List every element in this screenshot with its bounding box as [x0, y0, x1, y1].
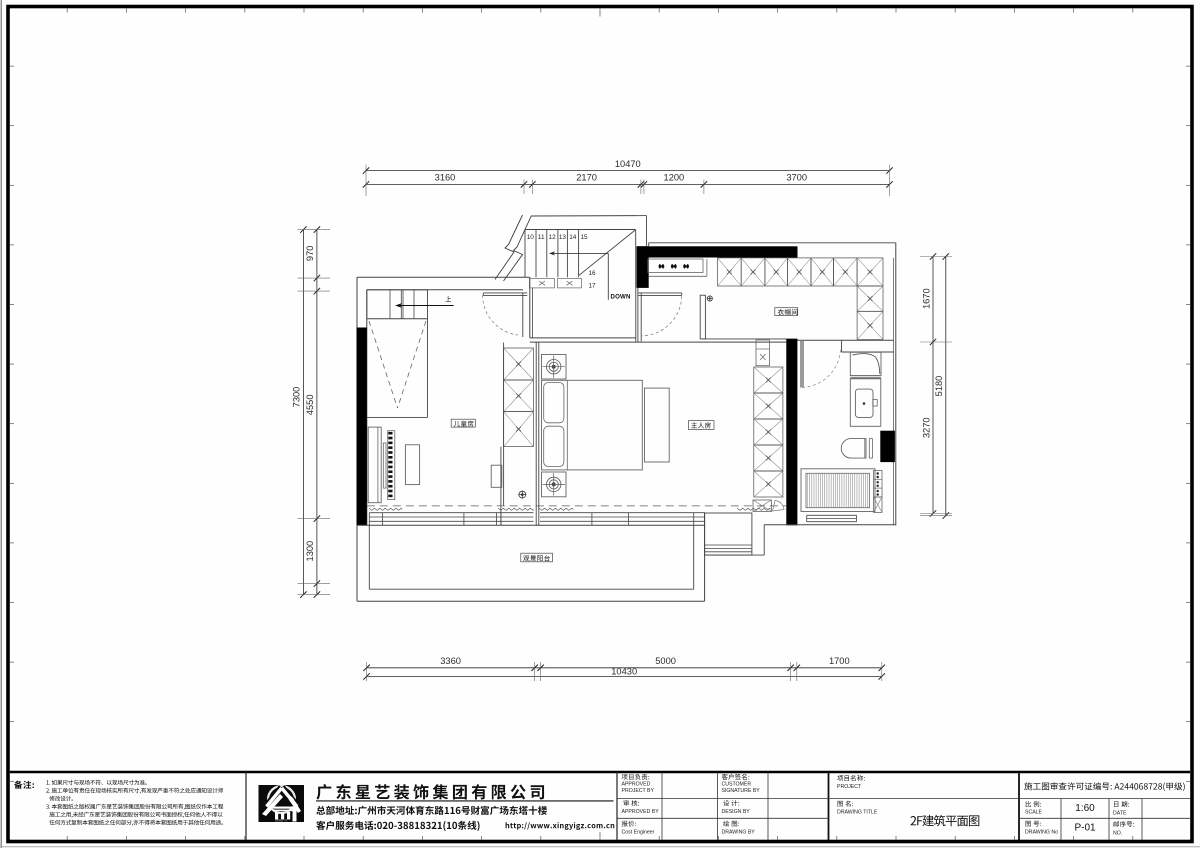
svg-text:4550: 4550 [305, 394, 315, 415]
svg-text:10470: 10470 [615, 159, 641, 169]
svg-text:2170: 2170 [576, 173, 597, 183]
svg-text:12: 12 [549, 234, 557, 241]
svg-text:5000: 5000 [655, 656, 676, 666]
svg-text:3360: 3360 [440, 656, 461, 666]
svg-text:17: 17 [589, 282, 597, 289]
svg-text:3700: 3700 [786, 173, 807, 183]
svg-text:DESIGN BY: DESIGN BY [722, 809, 751, 815]
svg-text:DATE: DATE [1113, 811, 1127, 817]
svg-text:DRAWING No: DRAWING No [1025, 830, 1058, 836]
svg-text:XING YI: XING YI [275, 819, 287, 823]
svg-text:PROJECT: PROJECT [837, 784, 862, 790]
svg-text:Cost Engineer: Cost Engineer [622, 830, 655, 836]
svg-text:PROJECT BY: PROJECT BY [622, 788, 655, 794]
svg-text:1700: 1700 [829, 656, 850, 666]
svg-text:3160: 3160 [435, 173, 456, 183]
svg-text:APPROVED: APPROVED [622, 782, 651, 788]
svg-text:DRAWING BY: DRAWING BY [722, 830, 756, 836]
svg-text:DOWN: DOWN [611, 293, 631, 300]
svg-text:P-01: P-01 [1074, 823, 1096, 834]
svg-text:CUSTOMER: CUSTOMER [722, 782, 752, 788]
svg-text:3270: 3270 [921, 417, 931, 438]
svg-text:15: 15 [580, 234, 588, 241]
svg-text:NO.: NO. [1113, 831, 1122, 837]
svg-text:1200: 1200 [664, 173, 685, 183]
svg-text:5180: 5180 [934, 376, 944, 397]
svg-text:1:60: 1:60 [1075, 803, 1095, 814]
svg-text:14: 14 [569, 234, 577, 241]
svg-text:SIGNATURE BY: SIGNATURE BY [722, 788, 761, 794]
svg-text:10430: 10430 [611, 666, 637, 676]
svg-text:10: 10 [527, 234, 535, 241]
svg-text:DRAWING TITLE: DRAWING TITLE [837, 810, 878, 816]
svg-text:7300: 7300 [292, 387, 302, 408]
svg-text:13: 13 [559, 234, 567, 241]
svg-text:APPROVED BY: APPROVED BY [622, 809, 660, 815]
svg-text:11: 11 [538, 234, 545, 241]
svg-text:1670: 1670 [921, 288, 931, 309]
svg-text:1300: 1300 [305, 541, 315, 562]
svg-text:16: 16 [589, 270, 597, 277]
svg-text:SCALE: SCALE [1025, 810, 1043, 816]
svg-text:970: 970 [305, 246, 315, 262]
